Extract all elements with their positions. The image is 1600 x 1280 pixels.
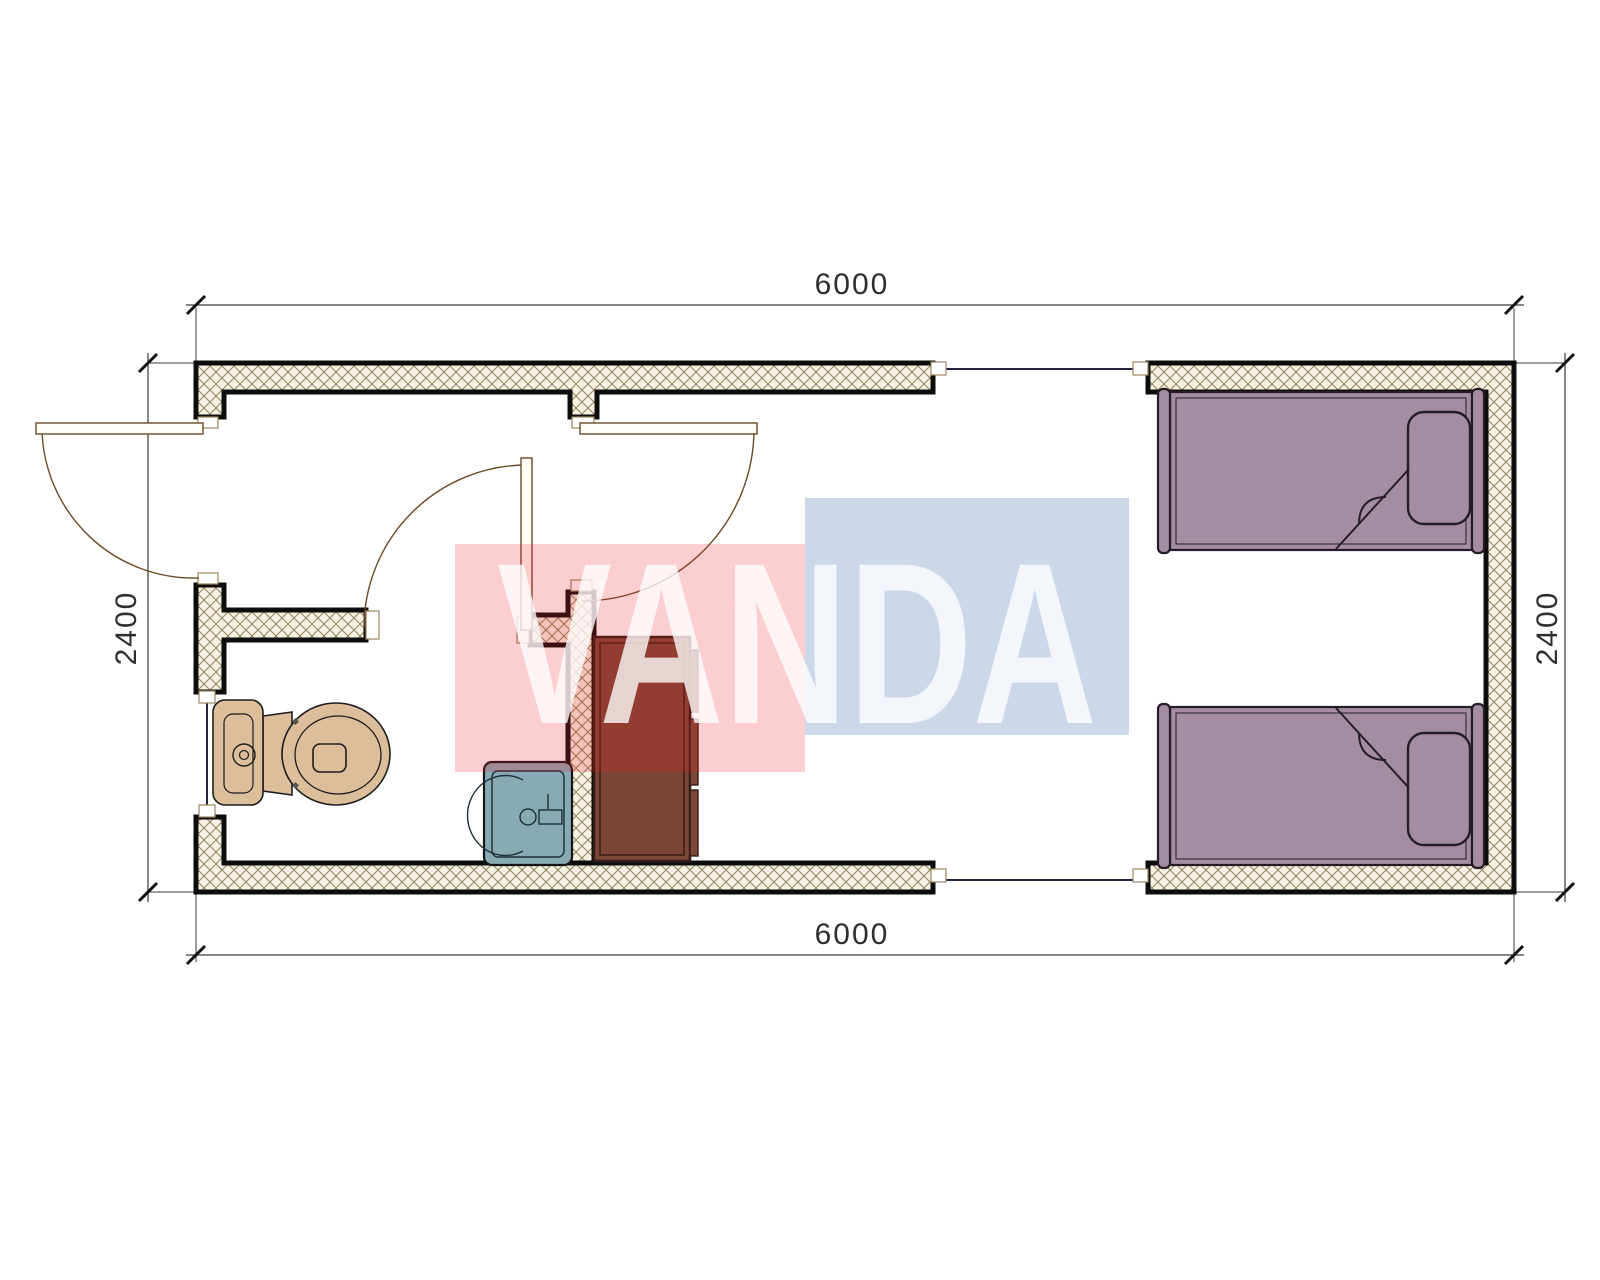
dimension-left	[139, 353, 194, 902]
door-bedroom-panel	[580, 423, 757, 434]
wall-top-left	[196, 363, 933, 417]
toilet	[213, 700, 390, 805]
pillow	[1408, 733, 1470, 845]
window-bottom	[931, 869, 1148, 882]
pillow	[1408, 412, 1470, 524]
floor-plan-drawing: 6000 6000 2400 2400	[0, 0, 1600, 1280]
door-entry-swing-arc	[42, 430, 199, 578]
door-entry	[36, 423, 203, 578]
window-top	[931, 362, 1148, 375]
dimension-bottom-label: 6000	[815, 918, 890, 951]
floor-plan-canvas: 6000 6000 2400 2400	[0, 0, 1600, 1280]
sink	[467, 762, 572, 865]
bed-2	[1158, 704, 1484, 868]
wall-left-t-partition	[196, 585, 366, 692]
dimension-top	[186, 296, 1524, 361]
dimension-top-label: 6000	[815, 268, 890, 301]
watermark: VANDA	[455, 498, 1129, 772]
dimension-left-label: 2400	[110, 591, 143, 666]
door-entry-panel	[36, 423, 203, 434]
watermark-text: VANDA	[497, 515, 1097, 772]
bed-1	[1158, 389, 1484, 553]
dimension-right-label: 2400	[1531, 591, 1564, 666]
